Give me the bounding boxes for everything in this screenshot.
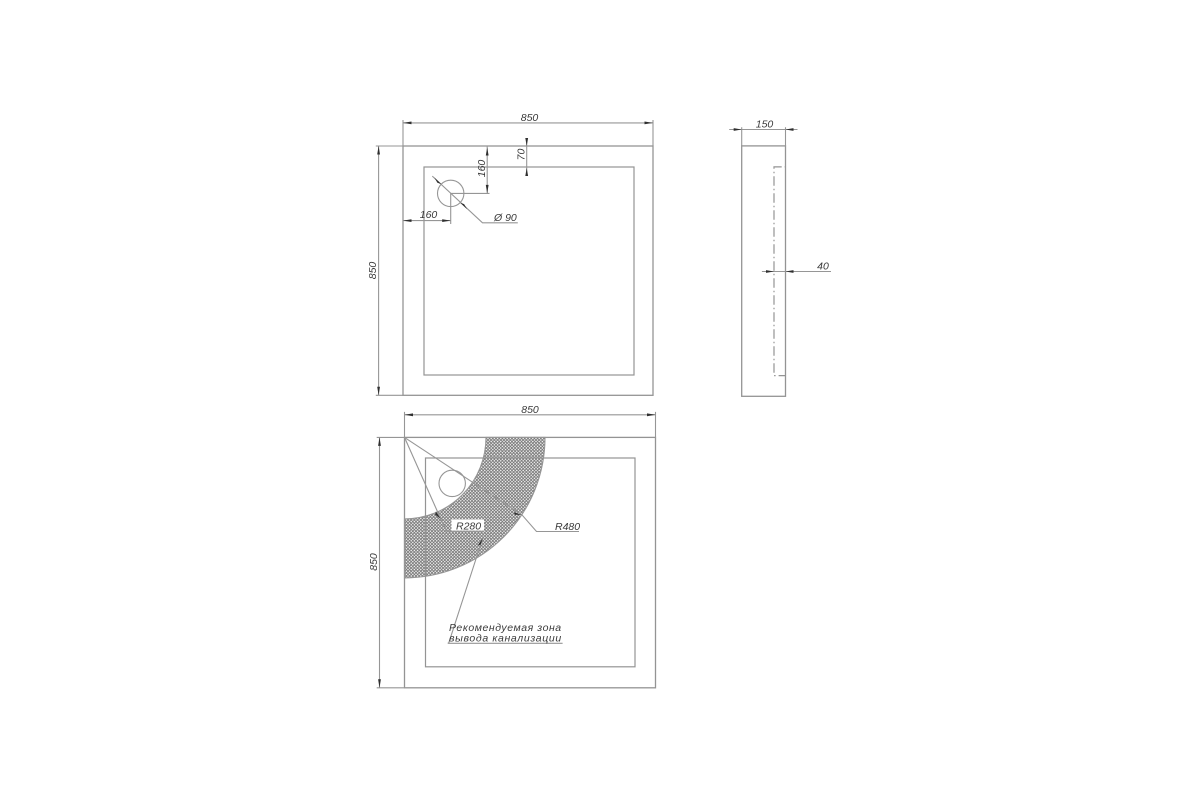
svg-text:160: 160 bbox=[476, 160, 488, 178]
svg-text:850: 850 bbox=[368, 553, 380, 571]
svg-text:850: 850 bbox=[521, 112, 539, 124]
svg-text:160: 160 bbox=[420, 209, 438, 221]
svg-text:R480: R480 bbox=[555, 521, 580, 533]
svg-text:R280: R280 bbox=[456, 521, 481, 533]
svg-text:вывода канализации: вывода канализации bbox=[449, 633, 562, 645]
svg-text:850: 850 bbox=[521, 404, 539, 416]
svg-text:150: 150 bbox=[756, 118, 774, 130]
svg-text:40: 40 bbox=[817, 260, 829, 272]
svg-text:Ø 90: Ø 90 bbox=[493, 212, 517, 224]
svg-text:850: 850 bbox=[367, 262, 379, 280]
svg-text:70: 70 bbox=[515, 149, 527, 161]
